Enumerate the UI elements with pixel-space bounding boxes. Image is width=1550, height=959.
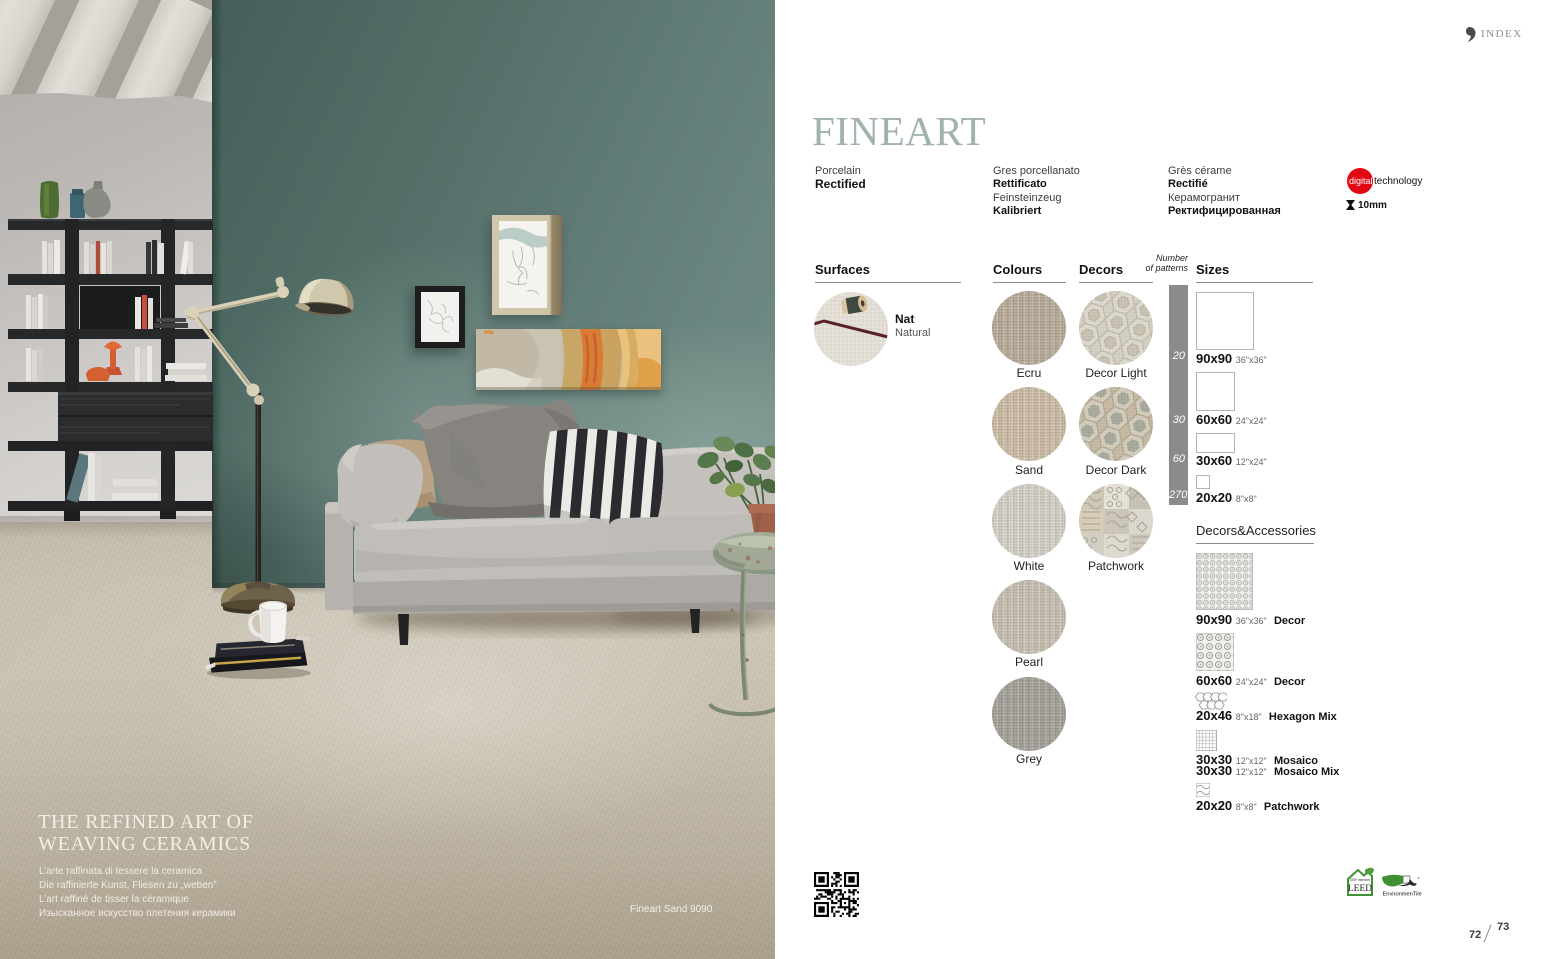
svg-text:LEED: LEED	[1348, 884, 1372, 894]
svg-text:EnvironmenTile: EnvironmenTile	[1383, 892, 1422, 898]
svg-text:GBP member: GBP member	[1350, 878, 1371, 882]
